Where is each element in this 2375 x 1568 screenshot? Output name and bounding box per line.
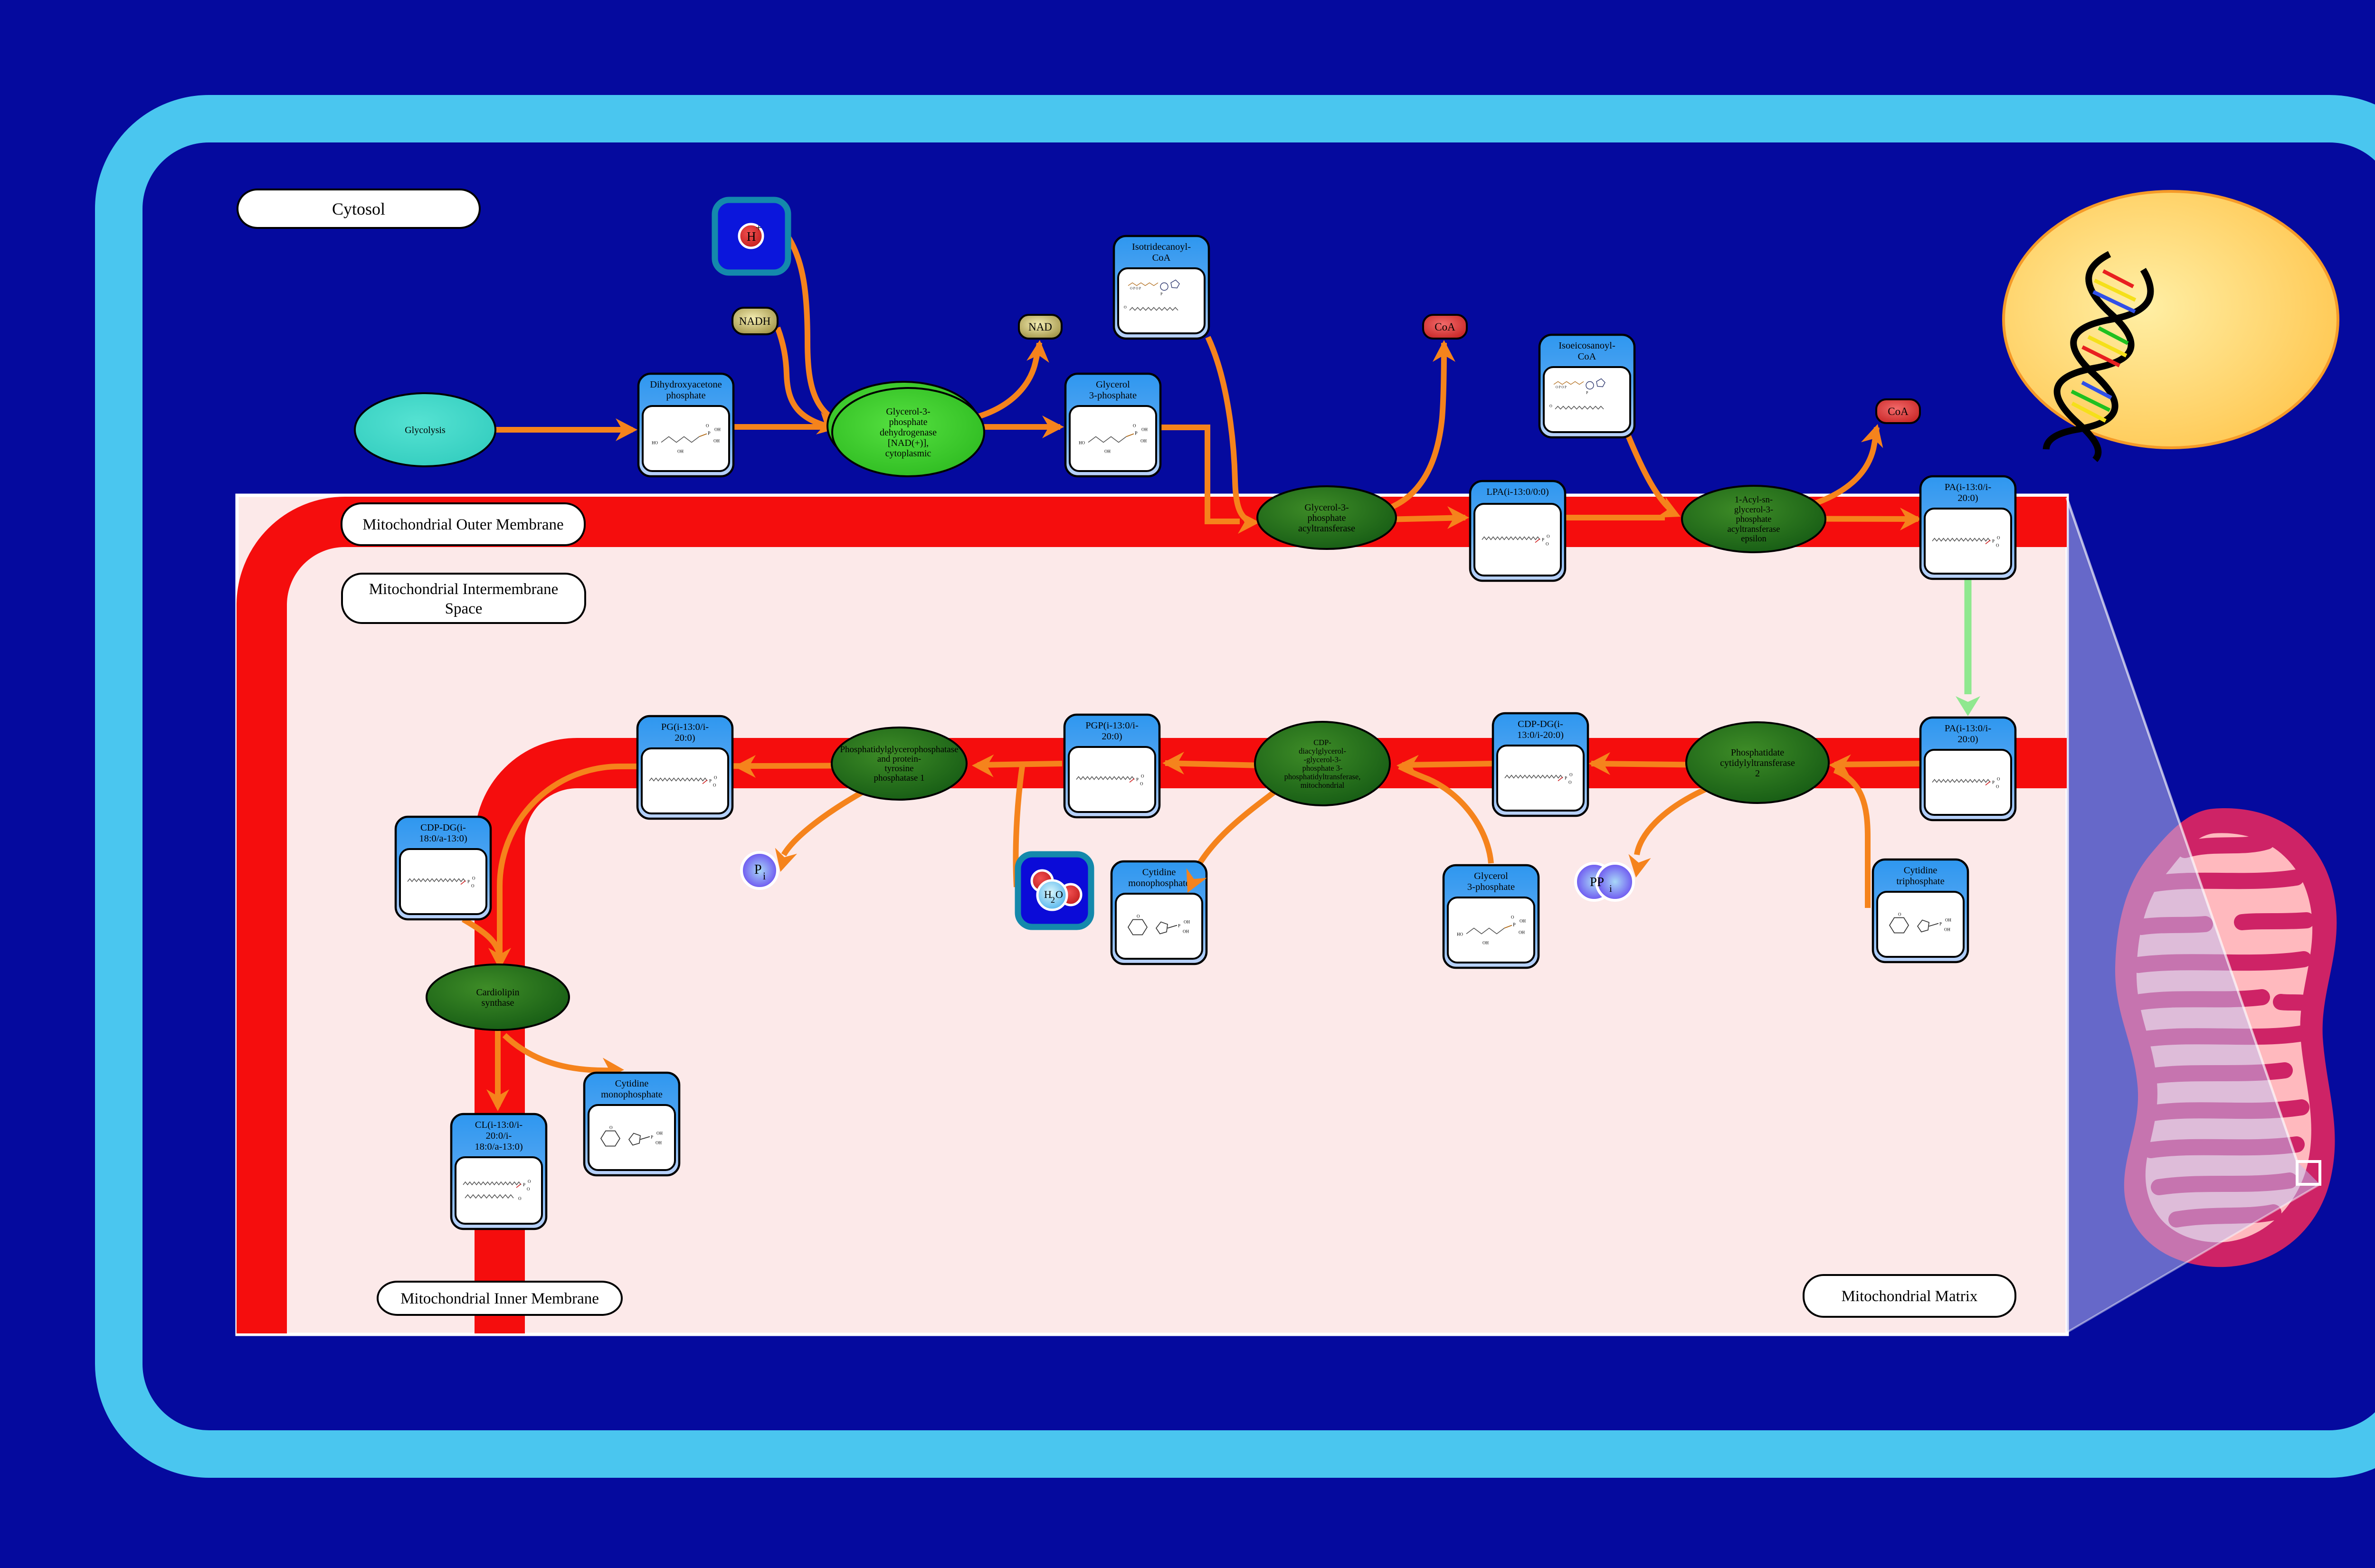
svg-text:Cytidine: Cytidine (615, 1078, 649, 1089)
svg-text:NADH: NADH (739, 315, 770, 327)
svg-text:[NAD(+)],: [NAD(+)], (888, 438, 929, 448)
svg-text:Glycerol: Glycerol (1096, 379, 1130, 390)
svg-text:glycerol-3-: glycerol-3- (1734, 505, 1773, 515)
svg-text:phosphate: phosphate (889, 417, 927, 427)
svg-text:Isoeicosanoyl-: Isoeicosanoyl- (1558, 340, 1615, 351)
svg-text:Glycolysis: Glycolysis (405, 425, 446, 435)
svg-text:Mitochondrial Matrix: Mitochondrial Matrix (1842, 1288, 1978, 1305)
svg-text:OH: OH (1519, 930, 1525, 935)
svg-text:and protein-: and protein- (877, 754, 921, 764)
svg-text:OH: OH (1104, 449, 1111, 454)
svg-text:OH: OH (1482, 941, 1489, 945)
svg-text:phosphate: phosphate (1307, 513, 1346, 523)
svg-text:O: O (1133, 424, 1136, 428)
svg-text:O: O (1511, 915, 1514, 920)
svg-text:20:0): 20:0) (1957, 493, 1978, 503)
svg-text:P: P (1160, 292, 1163, 296)
svg-text:P: P (708, 431, 711, 436)
svg-text:2: 2 (1051, 895, 1055, 905)
svg-text:P: P (1992, 780, 1995, 785)
svg-text:CDP-DG(i-: CDP-DG(i- (420, 822, 466, 833)
svg-text:CDP-: CDP- (1313, 738, 1331, 747)
svg-text:3-phosphate: 3-phosphate (1089, 390, 1137, 401)
svg-text:HO: HO (652, 441, 658, 445)
svg-text:dehydrogenase: dehydrogenase (880, 427, 937, 438)
svg-text:OH: OH (714, 427, 721, 432)
svg-text:3-phosphate: 3-phosphate (1467, 882, 1515, 892)
svg-text:O: O (471, 884, 475, 888)
svg-text:PGP(i-13:0/i-: PGP(i-13:0/i- (1085, 720, 1139, 731)
svg-text:18:0/a-13:0): 18:0/a-13:0) (419, 833, 467, 844)
svg-text:PG(i-13:0/i-: PG(i-13:0/i- (661, 722, 709, 732)
svg-text:LPA(i-13:0/0:0): LPA(i-13:0/0:0) (1486, 487, 1548, 497)
svg-text:OH: OH (1140, 439, 1147, 444)
svg-text:OH: OH (1141, 427, 1148, 432)
svg-text:P: P (754, 862, 762, 877)
svg-text:Cardiolipin: Cardiolipin (476, 987, 519, 998)
svg-text:OH: OH (1945, 918, 1951, 923)
svg-text:O: O (1055, 888, 1063, 900)
svg-text:OH: OH (1944, 927, 1950, 932)
svg-text:O: O (1141, 774, 1144, 779)
svg-text:phosphatidyltransferase,: phosphatidyltransferase, (1284, 772, 1361, 781)
svg-text:OH: OH (1183, 929, 1189, 934)
svg-text:P: P (467, 879, 470, 884)
svg-text:OH: OH (655, 1141, 662, 1145)
svg-text:monophosphate: monophosphate (601, 1089, 663, 1100)
svg-text:O: O (1997, 777, 2000, 782)
svg-text:P: P (1542, 538, 1544, 542)
svg-text:Mitochondrial Outer Membrane: Mitochondrial Outer Membrane (362, 516, 563, 533)
svg-text:P: P (651, 1135, 653, 1140)
svg-text:PA(i-13:0/i-: PA(i-13:0/i- (1945, 482, 1992, 492)
svg-text:phosphate 3-: phosphate 3- (1302, 764, 1343, 773)
svg-text:Mitochondrial Inner Membrane: Mitochondrial Inner Membrane (400, 1290, 599, 1307)
svg-text:1-Acyl-sn-: 1-Acyl-sn- (1735, 495, 1773, 505)
svg-text:OH: OH (1520, 919, 1526, 924)
svg-text:diacylglycerol-: diacylglycerol- (1299, 746, 1346, 756)
svg-text:O P O P: O P O P (1556, 386, 1567, 389)
svg-text:O: O (1547, 534, 1550, 539)
svg-text:Cytidine: Cytidine (1904, 865, 1938, 876)
svg-text:OH: OH (656, 1131, 663, 1136)
svg-text:P: P (1136, 777, 1139, 782)
svg-text:Glycerol-3-: Glycerol-3- (1304, 502, 1349, 513)
svg-text:mitochondrial: mitochondrial (1301, 781, 1345, 790)
svg-text:P: P (1565, 776, 1567, 781)
svg-text:O: O (714, 775, 717, 780)
svg-text:P: P (523, 1182, 525, 1187)
svg-text:HO: HO (1457, 932, 1463, 937)
svg-text:triphosphate: triphosphate (1896, 876, 1944, 887)
svg-text:20:0): 20:0) (1957, 734, 1978, 745)
svg-text:O: O (1898, 912, 1901, 917)
svg-text:PA(i-13:0/i-: PA(i-13:0/i- (1945, 723, 1992, 734)
svg-text:acyltransferase: acyltransferase (1298, 523, 1355, 534)
svg-text:-glycerol-3-: -glycerol-3- (1304, 755, 1341, 764)
svg-text:P: P (709, 779, 712, 784)
svg-text:Space: Space (445, 600, 483, 617)
svg-text:O: O (1996, 784, 1999, 789)
svg-text:phosphate: phosphate (666, 390, 705, 401)
svg-text:i: i (763, 870, 766, 882)
svg-text:20:0): 20:0) (1102, 731, 1122, 742)
svg-text:CL(i-13:0/i-: CL(i-13:0/i- (475, 1120, 522, 1130)
svg-text:monophosphate: monophosphate (1128, 878, 1190, 888)
svg-text:O: O (706, 424, 709, 428)
svg-text:O: O (527, 1187, 530, 1191)
svg-text:Phosphatidylglycerophosphatase: Phosphatidylglycerophosphatase (840, 745, 958, 755)
svg-text:O: O (1549, 404, 1552, 408)
svg-text:CoA: CoA (1152, 253, 1171, 263)
svg-text:PP: PP (1590, 875, 1604, 889)
svg-text:Dihydroxyacetone: Dihydroxyacetone (650, 379, 722, 390)
svg-text:Cytosol: Cytosol (332, 199, 385, 218)
svg-text:cytoplasmic: cytoplasmic (885, 448, 931, 459)
svg-text:OH: OH (677, 449, 684, 454)
svg-text:O: O (1568, 780, 1572, 785)
svg-text:P: P (1586, 391, 1588, 395)
svg-text:O: O (518, 1196, 522, 1201)
svg-text:20:0/i-: 20:0/i- (486, 1131, 512, 1141)
svg-text:20:0): 20:0) (674, 733, 695, 743)
svg-text:H: H (747, 229, 756, 244)
svg-text:O: O (713, 783, 716, 788)
svg-text:Cytidine: Cytidine (1142, 867, 1176, 878)
svg-text:O: O (1140, 782, 1143, 786)
svg-text:O P O P: O P O P (1130, 287, 1141, 291)
svg-text:Mitochondrial Intermembrane: Mitochondrial Intermembrane (369, 581, 559, 598)
svg-text:O: O (472, 876, 475, 881)
svg-text:P: P (1992, 539, 1995, 544)
svg-text:CoA: CoA (1888, 406, 1909, 417)
svg-text:CDP-DG(i-: CDP-DG(i- (1518, 719, 1563, 729)
svg-text:OH: OH (713, 439, 720, 444)
svg-text:Phosphatidate: Phosphatidate (1731, 747, 1784, 758)
svg-text:O: O (1997, 536, 2000, 540)
svg-text:Glycerol: Glycerol (1474, 871, 1508, 881)
svg-text:+: + (756, 222, 761, 234)
svg-text:epsilon: epsilon (1741, 534, 1766, 544)
svg-text:CoA: CoA (1434, 321, 1455, 333)
svg-text:O: O (1996, 543, 1999, 548)
svg-text:P: P (1135, 431, 1138, 436)
svg-text:phosphatase 1: phosphatase 1 (874, 773, 924, 783)
svg-text:O: O (1124, 305, 1127, 310)
svg-text:O: O (1546, 542, 1549, 547)
svg-text:synthase: synthase (482, 998, 514, 1008)
svg-text:Isotridecanoyl-: Isotridecanoyl- (1132, 242, 1191, 252)
svg-text:P: P (1513, 923, 1516, 928)
svg-text:2: 2 (1755, 768, 1760, 779)
svg-text:O: O (609, 1125, 613, 1130)
svg-text:acyltransferase: acyltransferase (1728, 525, 1780, 534)
svg-text:O: O (528, 1179, 531, 1184)
svg-text:OH: OH (1184, 920, 1190, 925)
svg-text:tyrosine: tyrosine (884, 764, 913, 774)
svg-text:18:0/a-13:0): 18:0/a-13:0) (475, 1142, 522, 1152)
svg-text:CoA: CoA (1578, 351, 1596, 362)
svg-text:i: i (1609, 883, 1612, 894)
svg-text:13:0/i-20:0): 13:0/i-20:0) (1517, 730, 1564, 740)
svg-text:P: P (1939, 922, 1942, 926)
svg-text:Glycerol-3-: Glycerol-3- (886, 406, 930, 417)
svg-text:O: O (1569, 773, 1573, 777)
svg-text:NAD: NAD (1028, 321, 1052, 333)
svg-text:HO: HO (1079, 441, 1085, 445)
svg-text:cytidylyltransferase: cytidylyltransferase (1720, 758, 1795, 768)
svg-text:P: P (1178, 924, 1180, 928)
svg-text:phosphate: phosphate (1736, 515, 1771, 524)
svg-text:O: O (1137, 914, 1140, 919)
